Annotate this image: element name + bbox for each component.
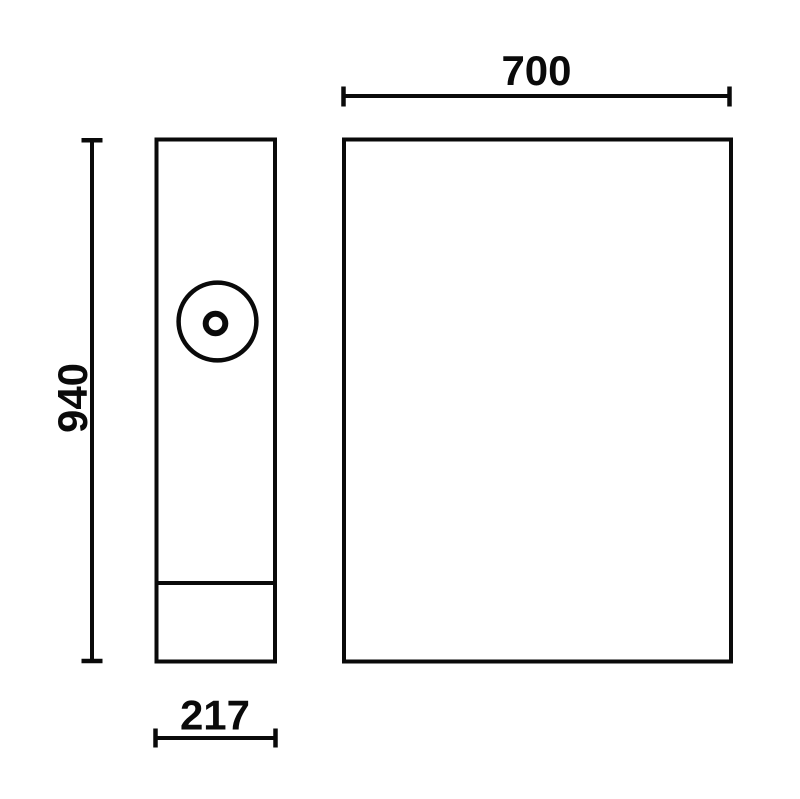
- svg-text:700: 700: [501, 47, 571, 94]
- svg-text:217: 217: [180, 692, 250, 739]
- svg-text:940: 940: [49, 363, 96, 433]
